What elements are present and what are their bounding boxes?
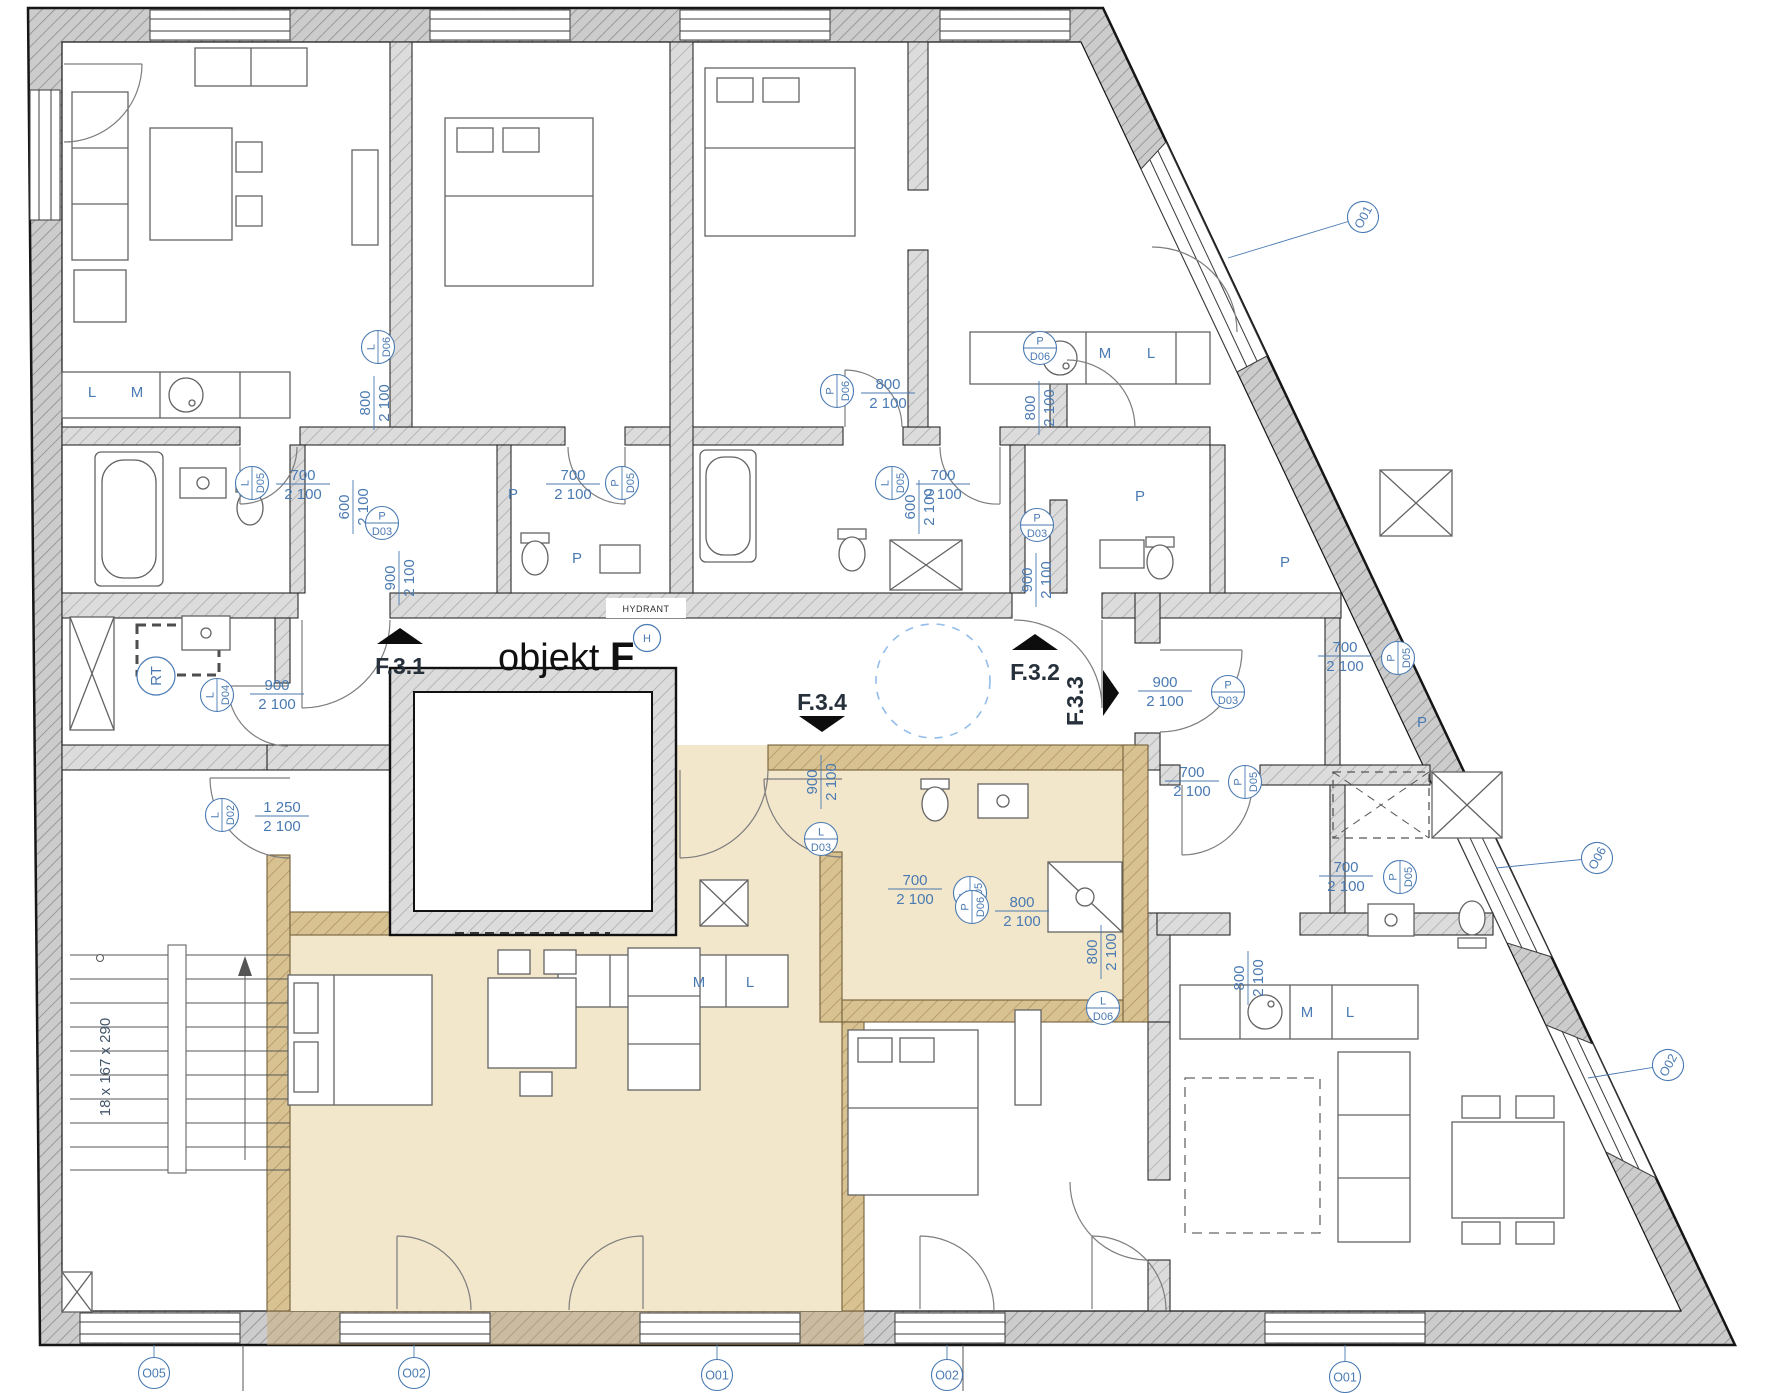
window-tag: O01 — [1228, 196, 1384, 258]
svg-text:D05: D05 — [1401, 648, 1413, 668]
svg-text:800: 800 — [875, 376, 900, 393]
svg-text:2 100: 2 100 — [263, 818, 301, 835]
svg-text:P: P — [378, 511, 385, 523]
room-letter: L — [1346, 1004, 1354, 1021]
corridor-title: objekt F — [498, 635, 634, 679]
section-lines — [243, 1345, 963, 1391]
svg-text:RT: RT — [148, 666, 165, 686]
floor-plan-page: objekt F HYDRANT H 18 x 167 x 290 RT F.3… — [0, 0, 1767, 1393]
svg-text:700: 700 — [1179, 764, 1204, 781]
sink-mid-bath — [600, 545, 640, 573]
window-bottom-o02b — [895, 1313, 1005, 1343]
svg-text:O01: O01 — [705, 1369, 729, 1383]
door-tag: P D06 — [821, 375, 854, 408]
wardrobe-middle-unit — [1015, 1010, 1041, 1105]
door-tag: P D05 — [1382, 642, 1415, 675]
dresser-top-left — [352, 150, 378, 245]
toilet-top-middle — [838, 529, 866, 571]
svg-text:D04: D04 — [220, 685, 232, 705]
svg-text:900: 900 — [804, 769, 821, 794]
room-letter: P — [508, 486, 518, 503]
svg-text:D05: D05 — [625, 473, 637, 493]
svg-text:P: P — [960, 903, 972, 910]
svg-text:800: 800 — [1084, 939, 1101, 964]
svg-text:1 250: 1 250 — [263, 799, 301, 816]
window-tag: O02 — [932, 1345, 963, 1391]
svg-text:700: 700 — [1332, 639, 1357, 656]
room-letter: L — [1147, 345, 1155, 362]
svg-text:800: 800 — [357, 390, 374, 415]
svg-text:800: 800 — [1022, 395, 1039, 420]
kitchen-sink-icon — [169, 378, 203, 412]
window-tag: O02 — [399, 1345, 430, 1389]
svg-text:P: P — [1386, 654, 1398, 661]
door-tag: L D05 — [236, 467, 269, 500]
toilet-mid-bath — [521, 533, 549, 575]
svg-text:2 100: 2 100 — [1003, 913, 1041, 930]
svg-text:D03: D03 — [372, 526, 392, 538]
svg-text:L: L — [1100, 996, 1106, 1008]
svg-text:2 100: 2 100 — [1038, 561, 1055, 599]
svg-text:L: L — [880, 480, 892, 486]
entry-label: F.3.4 — [797, 689, 847, 715]
svg-text:P: P — [825, 387, 837, 394]
svg-text:18 x 167 x 290: 18 x 167 x 290 — [97, 1018, 114, 1116]
door-tag: L D04 — [201, 679, 234, 712]
window-bottom-o01 — [640, 1313, 800, 1343]
svg-text:L: L — [240, 480, 252, 486]
svg-text:D06: D06 — [381, 337, 393, 357]
svg-text:2 100: 2 100 — [921, 488, 938, 526]
sink-top-right-bath — [1100, 540, 1144, 568]
svg-text:900: 900 — [264, 677, 289, 694]
door-tag: P D03 — [366, 507, 399, 540]
room-letter: L — [88, 384, 96, 401]
svg-text:700: 700 — [560, 467, 585, 484]
entry-label: F.3.2 — [1010, 659, 1060, 685]
room-letter: L — [746, 974, 754, 991]
svg-text:700: 700 — [930, 467, 955, 484]
svg-text:P: P — [610, 479, 622, 486]
kitchen-counter-top-right — [970, 332, 1210, 384]
hydrant-label: HYDRANT — [622, 604, 669, 614]
svg-text:2 100: 2 100 — [258, 696, 296, 713]
door-tag: P D05 — [606, 467, 639, 500]
svg-text:D03: D03 — [1027, 528, 1047, 540]
svg-text:D03: D03 — [1218, 695, 1238, 707]
floor-plan-drawing: objekt F HYDRANT H 18 x 167 x 290 RT F.3… — [0, 0, 1767, 1393]
window-tag: O01 — [1330, 1345, 1361, 1393]
toilet-top-right-bath — [1146, 537, 1174, 579]
bed-unit — [288, 975, 432, 1105]
svg-text:H: H — [643, 633, 651, 645]
page-title: objekt F — [498, 635, 634, 679]
svg-text:P: P — [1135, 488, 1145, 505]
sink-right-bath — [1368, 904, 1414, 936]
door-tag: P D03 — [1021, 509, 1054, 542]
entry-label: F.3.3 — [1062, 676, 1088, 726]
svg-text:600: 600 — [336, 494, 353, 519]
svg-text:700: 700 — [290, 467, 315, 484]
door-tag: L D05 — [876, 467, 909, 500]
svg-text:O02: O02 — [402, 1367, 426, 1381]
svg-text:D06: D06 — [1093, 1011, 1113, 1023]
door-tag: L D06 — [1087, 992, 1120, 1025]
door-tag: P D05 — [1229, 766, 1262, 799]
svg-text:L: L — [818, 827, 824, 839]
svg-text:L: L — [1346, 1004, 1354, 1021]
door-tag: P D05 — [1384, 861, 1417, 894]
svg-text:L: L — [210, 812, 222, 818]
room-letter: P — [1135, 488, 1145, 505]
svg-text:L: L — [746, 974, 754, 991]
window-bottom-o01b — [1265, 1313, 1425, 1343]
svg-text:800: 800 — [1009, 894, 1034, 911]
svg-text:P: P — [1280, 554, 1290, 571]
shaft-near-elevator — [700, 880, 748, 926]
svg-text:900: 900 — [1019, 567, 1036, 592]
bathtub-left — [95, 452, 163, 586]
shower-top-right — [1380, 470, 1452, 536]
sofa-top-left — [72, 92, 128, 260]
svg-text:2 100: 2 100 — [869, 395, 907, 412]
svg-text:D05: D05 — [1403, 867, 1415, 887]
stair-note: 18 x 167 x 290 — [97, 1018, 114, 1116]
svg-text:2 100: 2 100 — [376, 384, 393, 422]
sofa-bottom-right — [1338, 1052, 1410, 1242]
svg-text:2 100: 2 100 — [1173, 783, 1211, 800]
svg-text:2 100: 2 100 — [1327, 878, 1365, 895]
armchair-top-left — [74, 270, 126, 322]
svg-text:2 100: 2 100 — [401, 559, 418, 597]
room-letter: P — [1417, 714, 1427, 731]
shaft-top-middle — [890, 540, 962, 590]
door-tag: P D06 — [956, 891, 989, 924]
svg-text:D06: D06 — [840, 381, 852, 401]
svg-text:600: 600 — [902, 494, 919, 519]
window-bottom-o02 — [340, 1313, 490, 1343]
room-letter: M — [1099, 345, 1112, 362]
sink-left-bath — [180, 468, 226, 498]
kitchen-counter-bottom-right — [1180, 985, 1418, 1039]
door-tag: L D03 — [805, 823, 838, 856]
room-letter: M — [693, 974, 706, 991]
shower-right — [1432, 772, 1502, 838]
door-tag: L D02 — [206, 799, 239, 832]
svg-text:2 100: 2 100 — [1103, 933, 1120, 971]
room-letter: P — [1280, 554, 1290, 571]
room-letter: P — [572, 550, 582, 567]
window-tag: O05 — [139, 1345, 170, 1389]
svg-text:D05: D05 — [255, 473, 267, 493]
svg-text:D05: D05 — [895, 473, 907, 493]
svg-text:D02: D02 — [225, 805, 237, 825]
svg-text:M: M — [131, 384, 144, 401]
window-tag: O01 — [702, 1345, 733, 1391]
door-tag: L D06 — [362, 331, 395, 364]
utility-tag-rt: RT — [137, 657, 175, 695]
room-letter: M — [131, 384, 144, 401]
svg-text:2 100: 2 100 — [823, 763, 840, 801]
svg-text:M: M — [1099, 345, 1112, 362]
svg-text:2 100: 2 100 — [1326, 658, 1364, 675]
svg-text:O05: O05 — [142, 1367, 166, 1381]
svg-text:P: P — [572, 550, 582, 567]
svg-text:2 100: 2 100 — [1041, 389, 1058, 427]
svg-text:O02: O02 — [935, 1369, 959, 1383]
svg-text:800: 800 — [1231, 965, 1248, 990]
window-top-1 — [150, 10, 290, 40]
wardrobe-top-left — [195, 48, 307, 86]
svg-text:P: P — [1233, 778, 1245, 785]
svg-text:P: P — [1388, 873, 1400, 880]
svg-text:2 100: 2 100 — [896, 891, 934, 908]
svg-text:L: L — [366, 344, 378, 350]
door-tag: P D03 — [1212, 676, 1245, 709]
window-left — [30, 90, 60, 220]
elevator-shaft — [390, 668, 676, 935]
svg-text:M: M — [1301, 1004, 1314, 1021]
sink-unit-bath — [978, 784, 1028, 818]
kitchen-sink-icon — [1248, 995, 1282, 1029]
svg-text:L: L — [88, 384, 96, 401]
svg-text:D06: D06 — [975, 897, 987, 917]
window-top-4 — [940, 10, 1070, 40]
shower-unit-bath — [1048, 862, 1122, 932]
svg-text:900: 900 — [1152, 674, 1177, 691]
svg-text:D03: D03 — [811, 842, 831, 854]
svg-text:700: 700 — [1333, 859, 1358, 876]
bed-top-middle — [705, 68, 855, 236]
svg-text:2 100: 2 100 — [284, 486, 322, 503]
svg-text:P: P — [1224, 680, 1231, 692]
window-tag: O06 — [1496, 837, 1618, 879]
window-top-2 — [430, 10, 570, 40]
svg-text:2 100: 2 100 — [554, 486, 592, 503]
svg-text:O01: O01 — [1333, 1371, 1357, 1385]
svg-text:700: 700 — [902, 872, 927, 889]
bed-middle-unit — [848, 1030, 978, 1195]
svg-text:D06: D06 — [1030, 351, 1050, 363]
svg-text:P: P — [1036, 336, 1043, 348]
toilet-right-bath — [1458, 901, 1486, 948]
shaft-left — [70, 617, 114, 730]
bed-top-left — [445, 118, 593, 286]
entry-label: F.3.1 — [375, 653, 425, 679]
svg-text:2 100: 2 100 — [1146, 693, 1184, 710]
kitchen-counter-top-left — [62, 372, 290, 418]
door-tag: P D06 — [1024, 332, 1057, 365]
svg-text:P: P — [508, 486, 518, 503]
svg-text:2 100: 2 100 — [1250, 959, 1267, 997]
svg-text:L: L — [205, 692, 217, 698]
svg-text:900: 900 — [382, 565, 399, 590]
svg-text:P: P — [1417, 714, 1427, 731]
svg-text:D05: D05 — [1248, 772, 1260, 792]
window-top-3 — [680, 10, 830, 40]
shaft-small-corner — [62, 1272, 92, 1312]
sofa-unit — [628, 948, 700, 1090]
svg-text:M: M — [693, 974, 706, 991]
window-bottom-o05 — [80, 1313, 240, 1343]
svg-text:P: P — [1033, 513, 1040, 525]
bathtub-top-middle — [700, 450, 756, 562]
svg-text:L: L — [1147, 345, 1155, 362]
toilet-unit-bath — [921, 779, 949, 821]
room-letter: M — [1301, 1004, 1314, 1021]
